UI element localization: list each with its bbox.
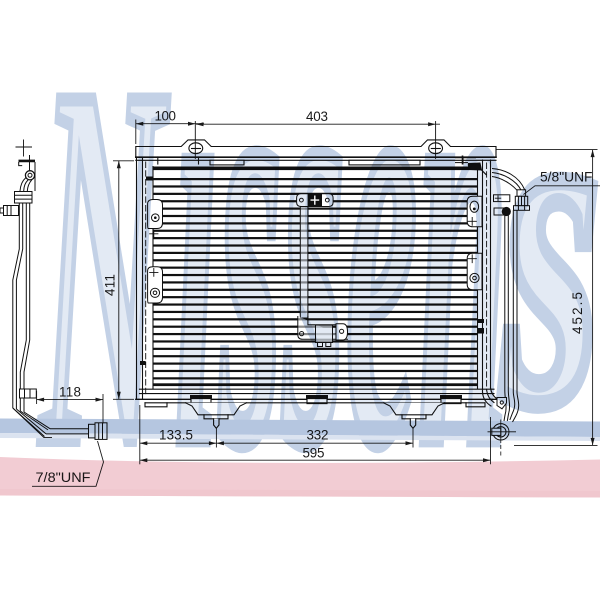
svg-text:452.5: 452.5 [570,292,585,334]
svg-text:332: 332 [307,428,329,443]
svg-text:100: 100 [155,109,177,124]
svg-text:411: 411 [103,274,118,296]
svg-text:403: 403 [306,109,328,124]
svg-text:7/8"UNF: 7/8"UNF [36,470,91,485]
svg-text:595: 595 [303,446,325,461]
svg-text:5/8"UNF: 5/8"UNF [540,170,593,185]
svg-text:133.5: 133.5 [159,428,193,443]
svg-text:118: 118 [59,385,81,400]
